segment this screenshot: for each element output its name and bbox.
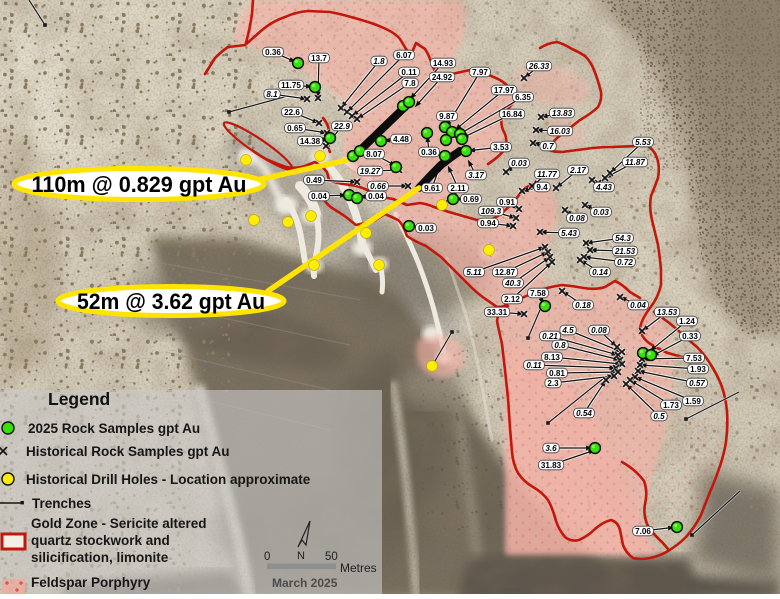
svg-text:4.48: 4.48 <box>393 135 409 144</box>
svg-text:0.14: 0.14 <box>592 268 608 277</box>
svg-text:3.17: 3.17 <box>468 171 484 180</box>
svg-text:0.33: 0.33 <box>682 332 698 341</box>
svg-text:2.3: 2.3 <box>547 379 559 388</box>
svg-text:0.04: 0.04 <box>311 192 327 201</box>
svg-text:0.5: 0.5 <box>653 412 665 421</box>
svg-text:Gold Zone - Sericite altered: Gold Zone - Sericite altered <box>31 516 207 531</box>
svg-text:7.58: 7.58 <box>530 289 546 298</box>
svg-text:13.7: 13.7 <box>311 54 327 63</box>
svg-text:16.84: 16.84 <box>502 110 523 119</box>
svg-text:0.8: 0.8 <box>554 341 566 350</box>
svg-text:N: N <box>297 550 305 562</box>
svg-text:26.33: 26.33 <box>528 62 550 71</box>
svg-text:0.72: 0.72 <box>617 258 633 267</box>
svg-text:52m @ 3.62 gpt Au: 52m @ 3.62 gpt Au <box>77 289 265 314</box>
svg-text:7.06: 7.06 <box>635 527 651 536</box>
svg-text:33.31: 33.31 <box>487 308 508 317</box>
svg-text:11.77: 11.77 <box>537 170 557 179</box>
svg-text:quartz stockwork and: quartz stockwork and <box>31 533 170 548</box>
svg-text:0.11: 0.11 <box>526 361 542 370</box>
svg-text:12.87: 12.87 <box>495 268 516 277</box>
svg-text:0.94: 0.94 <box>480 219 496 228</box>
svg-text:5.43: 5.43 <box>561 229 577 238</box>
svg-text:silicification, limonite: silicification, limonite <box>31 550 169 565</box>
svg-text:0.57: 0.57 <box>689 379 705 388</box>
svg-text:Historical Rock Samples gpt Au: Historical Rock Samples gpt Au <box>26 444 230 459</box>
svg-text:0.21: 0.21 <box>542 332 558 341</box>
svg-text:0.03: 0.03 <box>511 159 527 168</box>
svg-text:Feldspar Porphyry: Feldspar Porphyry <box>31 575 151 590</box>
svg-text:0.49: 0.49 <box>306 176 322 185</box>
svg-text:0.36: 0.36 <box>265 48 281 57</box>
svg-text:1.93: 1.93 <box>690 365 706 374</box>
svg-text:0.65: 0.65 <box>287 124 303 133</box>
svg-text:2.12: 2.12 <box>504 295 520 304</box>
svg-text:1.24: 1.24 <box>679 317 695 326</box>
svg-text:0.66: 0.66 <box>370 182 386 191</box>
svg-text:0.03: 0.03 <box>593 208 609 217</box>
svg-text:7.53: 7.53 <box>686 354 702 363</box>
svg-text:1.73: 1.73 <box>663 401 679 410</box>
svg-text:5.53: 5.53 <box>635 138 651 147</box>
svg-text:8.07: 8.07 <box>366 150 382 159</box>
svg-text:0.18: 0.18 <box>575 301 591 310</box>
svg-text:6.35: 6.35 <box>515 93 531 102</box>
svg-text:2025 Rock Samples gpt Au: 2025 Rock Samples gpt Au <box>28 421 200 436</box>
svg-text:19.27: 19.27 <box>360 167 381 176</box>
svg-text:Metres: Metres <box>340 561 377 575</box>
svg-text:0.04: 0.04 <box>368 192 384 201</box>
svg-text:9.87: 9.87 <box>439 112 455 121</box>
svg-text:0.03: 0.03 <box>418 224 434 233</box>
svg-text:0.54: 0.54 <box>576 409 592 418</box>
svg-text:0.81: 0.81 <box>549 369 565 378</box>
svg-text:14.93: 14.93 <box>433 59 454 68</box>
svg-text:Legend: Legend <box>48 389 110 409</box>
svg-text:13.53: 13.53 <box>657 308 678 317</box>
svg-text:Trenches: Trenches <box>32 496 91 511</box>
svg-text:0.7: 0.7 <box>542 142 554 151</box>
svg-text:40.3: 40.3 <box>504 279 521 288</box>
svg-text:4.5: 4.5 <box>561 326 574 335</box>
svg-text:3.53: 3.53 <box>493 143 509 152</box>
svg-text:1.8: 1.8 <box>373 57 385 66</box>
svg-text:Historical Drill Holes - Locat: Historical Drill Holes - Location approx… <box>26 472 311 487</box>
svg-text:16.03: 16.03 <box>550 127 571 136</box>
svg-text:0.11: 0.11 <box>401 68 417 77</box>
svg-text:24.92: 24.92 <box>432 73 453 82</box>
svg-text:6.07: 6.07 <box>396 51 412 60</box>
svg-text:5.11: 5.11 <box>466 268 482 277</box>
svg-text:7.8: 7.8 <box>404 79 416 88</box>
svg-text:0.08: 0.08 <box>591 326 607 335</box>
svg-text:7.97: 7.97 <box>472 68 488 77</box>
svg-text:22.9: 22.9 <box>333 122 350 131</box>
svg-text:21.53: 21.53 <box>614 247 636 256</box>
svg-text:50: 50 <box>325 551 338 563</box>
svg-text:0.08: 0.08 <box>569 214 585 223</box>
svg-text:1.59: 1.59 <box>685 397 701 406</box>
svg-text:0: 0 <box>264 551 270 563</box>
svg-text:54.3: 54.3 <box>615 234 631 243</box>
svg-text:17.97: 17.97 <box>494 86 515 95</box>
svg-text:22.6: 22.6 <box>284 108 300 117</box>
svg-text:31.83: 31.83 <box>541 461 562 470</box>
svg-text:0.04: 0.04 <box>630 301 646 310</box>
svg-text:8.1: 8.1 <box>266 90 278 99</box>
svg-text:109.3: 109.3 <box>481 207 502 216</box>
svg-text:0.91: 0.91 <box>499 198 515 207</box>
svg-text:March 2025: March 2025 <box>272 576 338 590</box>
svg-text:11.87: 11.87 <box>625 158 645 167</box>
svg-text:0.36: 0.36 <box>421 148 437 157</box>
svg-text:11.75: 11.75 <box>281 81 301 90</box>
svg-text:2.17: 2.17 <box>569 166 586 175</box>
svg-text:2.11: 2.11 <box>450 184 466 193</box>
svg-text:0.69: 0.69 <box>463 195 479 204</box>
svg-text:14.38: 14.38 <box>300 137 321 146</box>
svg-text:3.6: 3.6 <box>545 444 557 453</box>
svg-text:110m @ 0.829 gpt Au: 110m @ 0.829 gpt Au <box>32 172 247 197</box>
svg-text:8.13: 8.13 <box>544 353 560 362</box>
svg-text:9.4: 9.4 <box>536 183 548 192</box>
svg-text:9.61: 9.61 <box>424 184 440 193</box>
svg-text:4.43: 4.43 <box>595 183 612 192</box>
svg-text:13.83: 13.83 <box>552 109 573 118</box>
